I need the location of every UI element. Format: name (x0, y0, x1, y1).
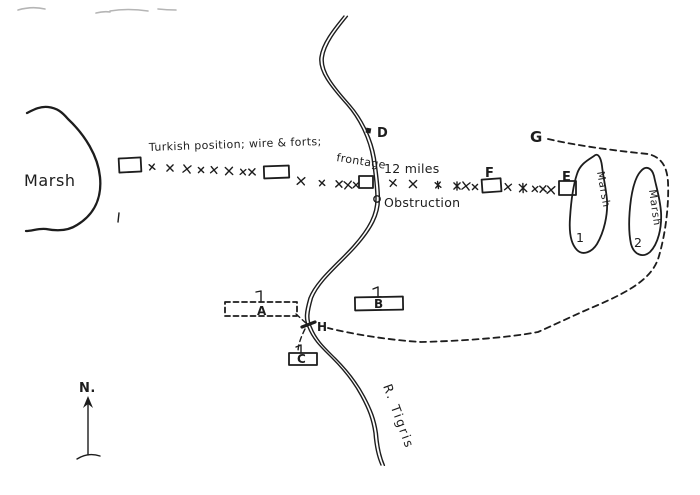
camp-c: C (289, 345, 317, 366)
wire-x-mark (390, 180, 397, 187)
fort-rect-2 (264, 166, 289, 179)
wire-x-mark (472, 184, 477, 189)
camp-a-label: A (257, 304, 267, 318)
scan-artifact (158, 9, 176, 10)
wire-x-mark (297, 177, 305, 185)
wire-x-mark (532, 186, 538, 192)
fort-rect-3 (359, 176, 373, 188)
point-d-marker (366, 128, 372, 134)
north-arrow: N. (77, 381, 100, 459)
wire-x-mark (547, 186, 555, 194)
obstruction-label: Obstruction (384, 195, 460, 210)
scan-artifact (18, 8, 45, 10)
wire-x-mark (336, 181, 343, 188)
marsh-2-number: 2 (634, 235, 642, 250)
wire-x-mark (198, 167, 203, 172)
camp-a: A (225, 291, 297, 318)
camp-b-label: B (374, 297, 383, 311)
wire-x-mark (249, 169, 256, 176)
wire-x-mark (435, 181, 441, 189)
camp-b-flag (373, 287, 378, 297)
north-arrow-base (77, 455, 100, 459)
wire-x-mark (149, 164, 155, 170)
river-tigris-path (305, 16, 384, 465)
camp-a-flag (256, 291, 261, 302)
marsh-2-label: Marsh (646, 189, 663, 227)
frontage-caption: frontage (336, 151, 387, 172)
camp-b: B (355, 287, 403, 311)
wire-x-mark (454, 182, 460, 190)
wire-x-mark (319, 180, 325, 186)
scan-artifact (96, 12, 110, 13)
fort-rect-1 (119, 157, 142, 172)
wire-x-mark (409, 180, 416, 187)
point-f-label: F (485, 166, 494, 181)
wire-x-mark (344, 181, 352, 189)
marsh-left-outline (26, 107, 100, 231)
marsh-left-label: Marsh (24, 171, 76, 190)
point-e-label: E (562, 170, 571, 185)
marsh-1-number: 1 (576, 230, 584, 245)
wire-x-mark (519, 183, 527, 192)
river-line-west (305, 16, 381, 465)
scan-artifact-marks (18, 8, 176, 13)
map-canvas: Marsh R. Tigris Turkish position; wire &… (0, 0, 700, 495)
hand-drawn-sketch-map: Marsh R. Tigris Turkish position; wire &… (0, 0, 700, 495)
bridge-mark (302, 322, 315, 327)
wire-x-mark (225, 167, 232, 174)
river-line-east (309, 16, 385, 465)
wire-x-mark (211, 167, 218, 174)
camp-c-label: C (297, 352, 306, 366)
twelve-miles-caption: 12 miles (384, 161, 440, 176)
point-h-label: H (317, 320, 327, 334)
wire-x-mark (240, 169, 246, 175)
wire-x-mark (183, 165, 191, 173)
turkish-position-caption: Turkish position; wire & forts; (148, 135, 322, 154)
wire-x-mark (462, 182, 470, 190)
marsh-1-label: Marsh (594, 170, 612, 208)
stray-mark (118, 213, 119, 222)
point-d-label: D (377, 126, 388, 141)
wire-x-mark (540, 186, 547, 193)
river-label: R. Tigris (380, 382, 417, 451)
north-label: N. (79, 381, 96, 396)
wire-x-mark (353, 182, 358, 187)
wire-x-mark (505, 184, 512, 191)
point-g-label: G (530, 128, 542, 146)
wire-x-mark (167, 165, 173, 171)
scan-artifact (110, 10, 148, 12)
